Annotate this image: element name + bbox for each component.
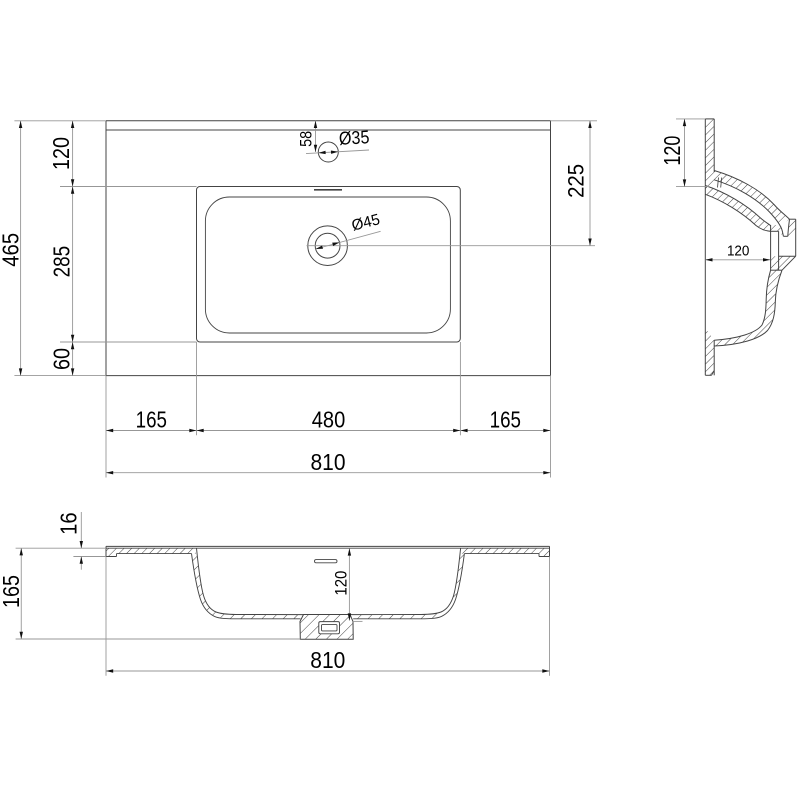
svg-text:465: 465: [0, 233, 24, 267]
svg-text:60: 60: [49, 348, 75, 370]
svg-text:480: 480: [312, 406, 346, 432]
svg-text:165: 165: [490, 406, 521, 432]
svg-text:120: 120: [727, 243, 750, 259]
svg-text:165: 165: [136, 406, 167, 432]
svg-text:225: 225: [564, 164, 589, 198]
svg-text:16: 16: [56, 512, 82, 535]
svg-text:165: 165: [0, 575, 24, 608]
svg-text:810: 810: [311, 449, 346, 475]
svg-text:120: 120: [48, 137, 74, 170]
svg-text:58: 58: [297, 131, 316, 147]
svg-text:120: 120: [659, 136, 685, 166]
svg-text:Ø35: Ø35: [338, 126, 370, 149]
svg-text:120: 120: [332, 571, 350, 596]
svg-text:285: 285: [49, 246, 75, 278]
svg-text:810: 810: [310, 647, 345, 673]
